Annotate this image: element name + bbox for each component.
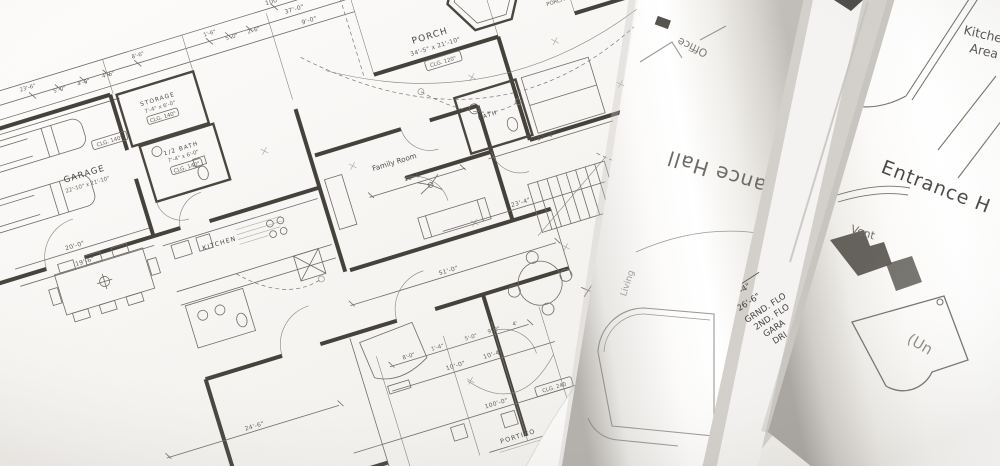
blueprint-photo: 100'-0" 37'-0" 9'-0" 23'-6" 5'-0" 4'-0" … <box>0 0 1000 466</box>
blueprint-photo-svg: 100'-0" 37'-0" 9'-0" 23'-6" 5'-0" 4'-0" … <box>0 0 1000 466</box>
vignette-overlay <box>0 0 1000 466</box>
